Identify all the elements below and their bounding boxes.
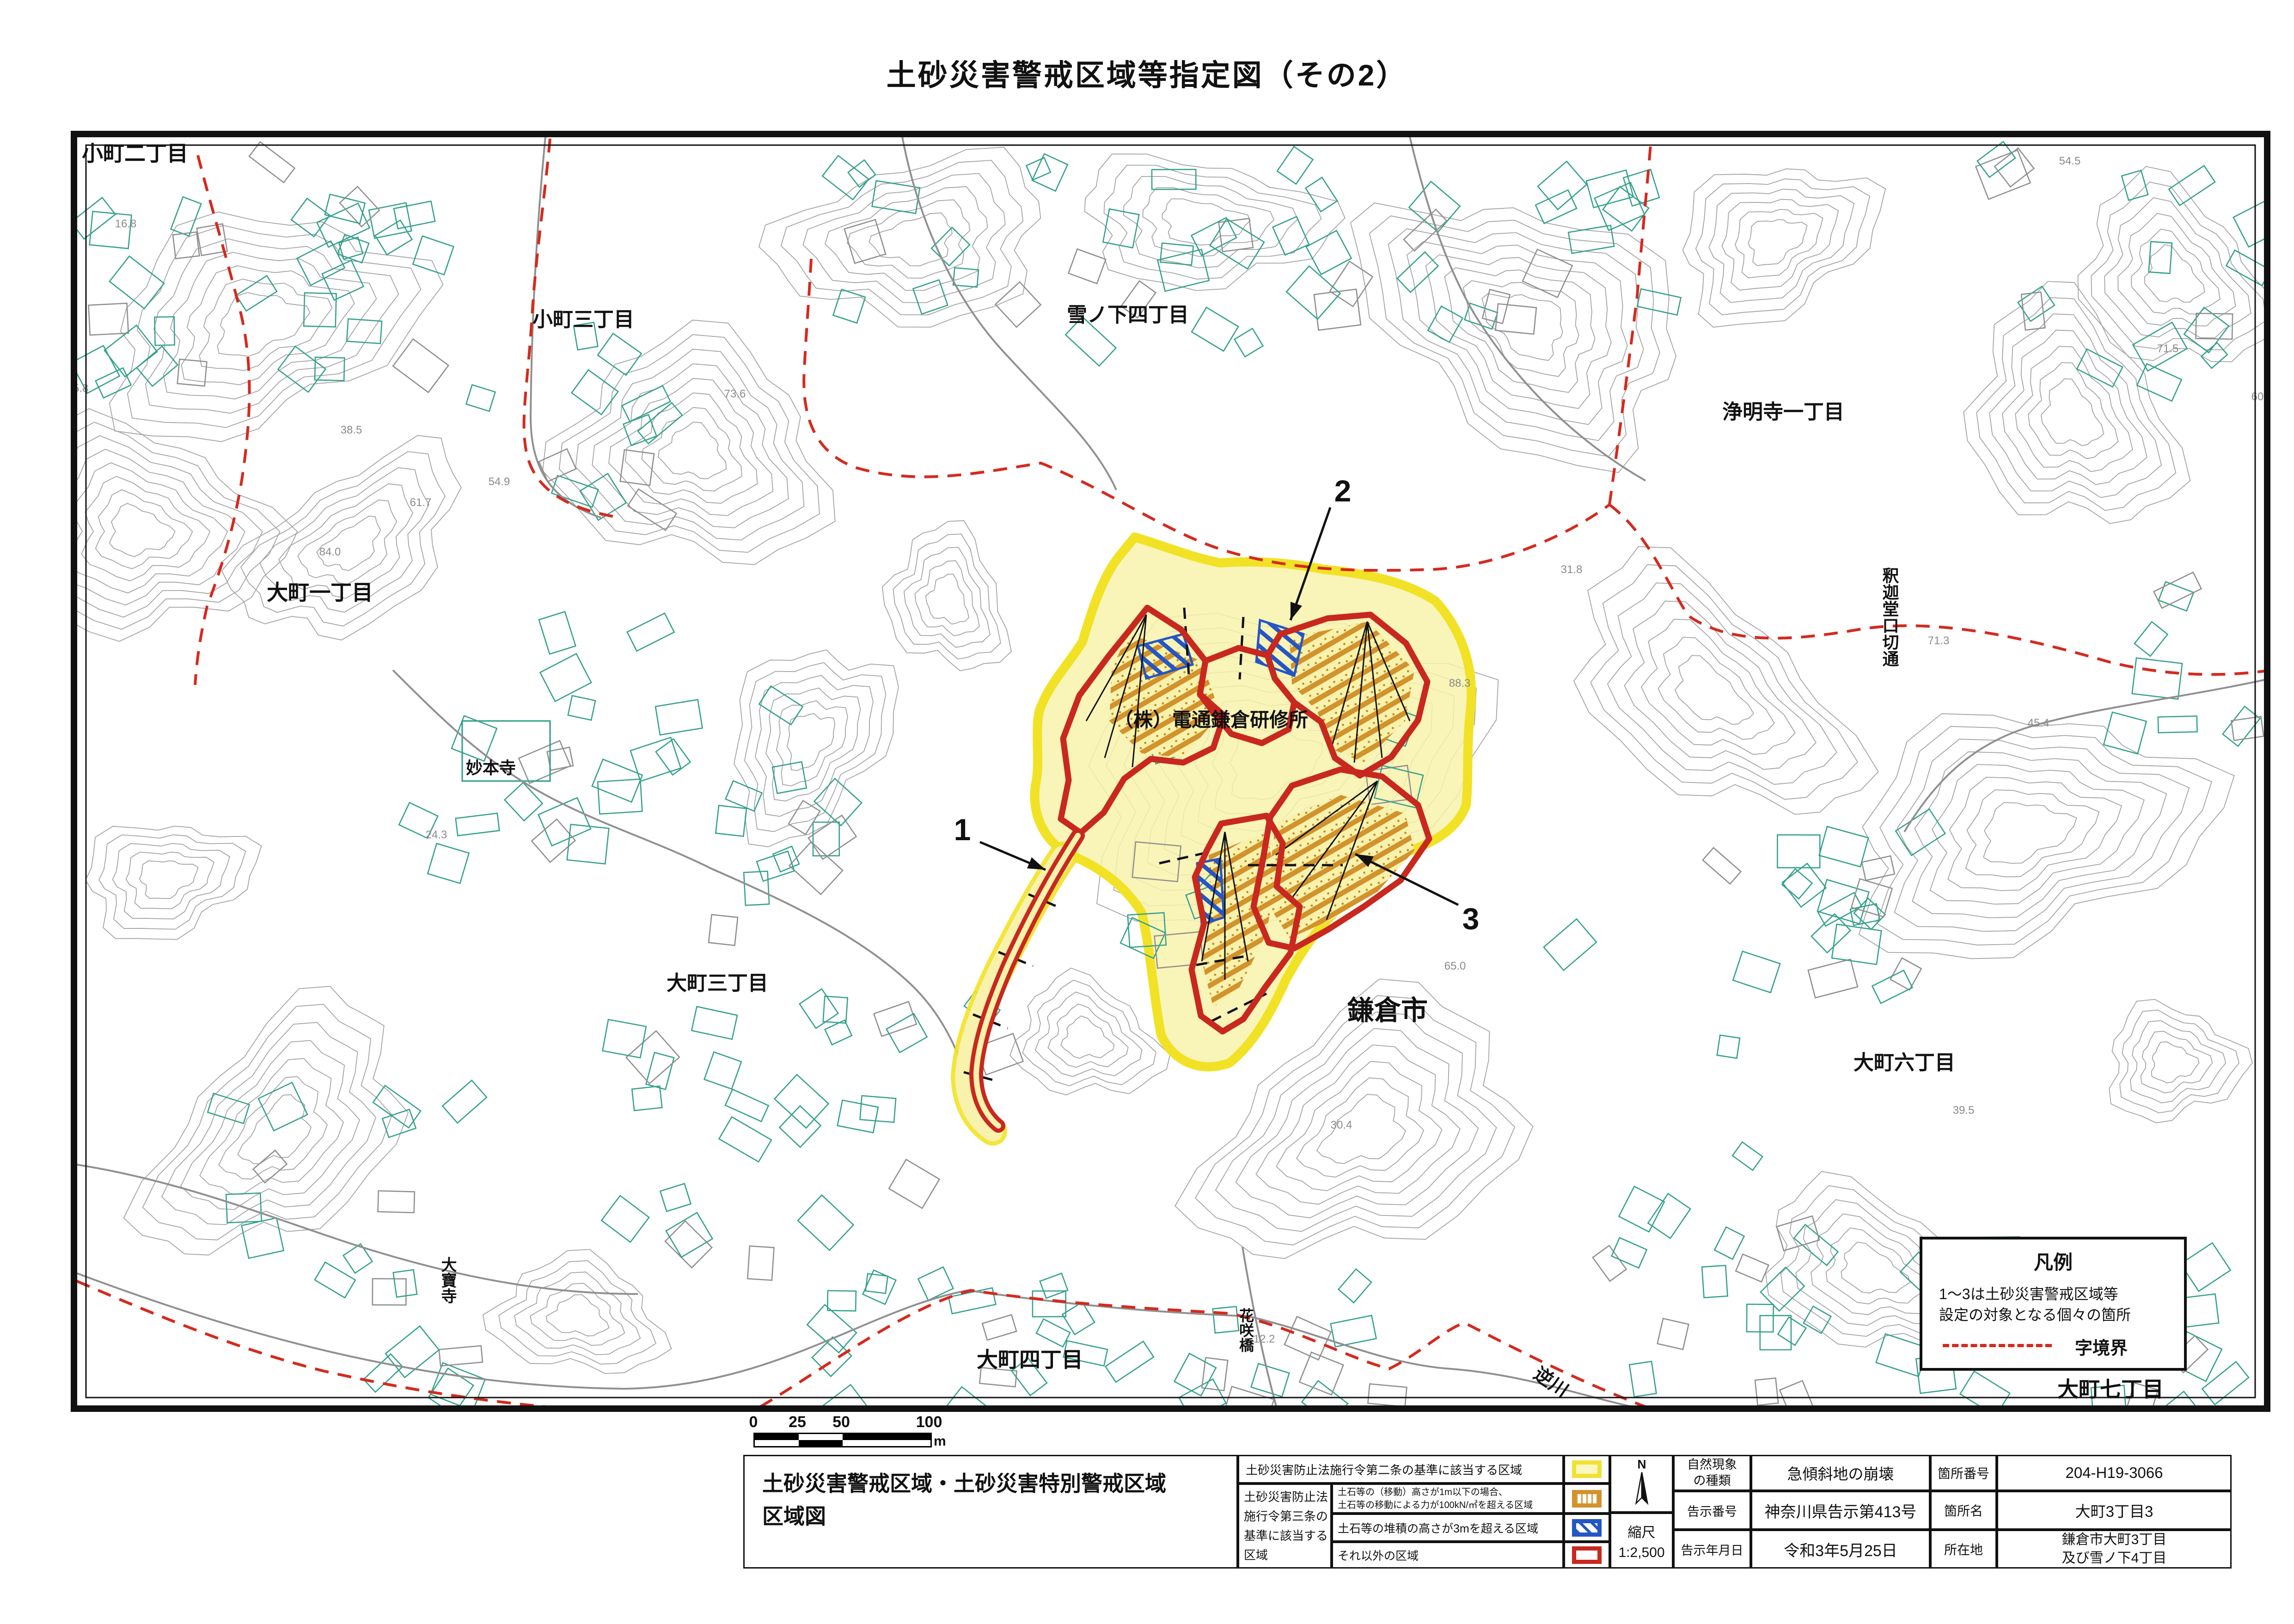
spot-elevation: 71.5 [2157,342,2179,355]
swatch-cell [1564,1542,1610,1569]
spot-elevation: 84.0 [319,546,341,558]
spot-elevation: 88.3 [1449,677,1471,690]
scale-bar-graphic [753,1433,932,1447]
scale-bar: 0 25 50 100 m [745,1413,958,1449]
map-canvas: 2 1 3 小町二丁目小町三丁目雪ノ下四丁目浄明寺一丁目大町一丁目妙本寺大町三丁… [0,0,2294,1622]
detail-key: 告示年月日 [1673,1530,1751,1569]
legend-note: 1～3は土砂災害警戒区域等 設定の対象となる個々の箇所 [1939,1284,2131,1325]
detail-value: 神奈川県告示第413号 [1751,1491,1930,1530]
page: 土砂災害警戒区域等指定図（その2） [0,0,2294,1622]
north-cell: N [1610,1455,1673,1513]
spot-elevation: 12.2 [1254,1333,1275,1345]
map-label: 花咲橋 [1237,1308,1254,1352]
spot-elevation: 24.3 [426,829,447,841]
spot-elevation: 45.4 [2028,717,2049,729]
svg-text:N: N [1637,1458,1646,1471]
map-label: 大町四丁目 [977,1348,1083,1372]
page-title: 土砂災害警戒区域等指定図（その2） [0,52,2294,94]
scale-unit: m [934,1434,946,1449]
spot-elevation: 54.9 [489,476,510,488]
spot-elevation: 61.7 [410,496,432,509]
map-label: 大町三丁目 [667,972,768,995]
spot-elevation: 38.5 [341,424,362,436]
warning-zone-swatch [1572,1460,1602,1478]
swatch-cell [1564,1484,1610,1514]
detail-value: 204-H19-3066 [1997,1455,2232,1491]
spot-elevation: 16.8 [115,218,137,230]
spot-elevation: 71.3 [1928,635,1950,647]
map-label: 大寶寺 [439,1257,457,1304]
boundary-label: 字境界 [2075,1334,2128,1359]
deposit-swatch [1572,1519,1602,1537]
spot-elevation: 65.0 [1444,960,1466,972]
detail-value: 令和3年5月25日 [1751,1530,1930,1569]
map-label: 小町三丁目 [532,308,634,331]
debris-force-swatch [1572,1490,1602,1508]
scale-value: 1:2,500 [1618,1545,1664,1561]
detail-value: 大町3丁目3 [1997,1491,2232,1530]
legend-box: 凡例 1～3は土砂災害警戒区域等 設定の対象となる個々の箇所 字境界 [1920,1237,2187,1371]
law3-criteria-1: 土石等の（移動）高さが1m以下の場合、 土石等の移動による力が100kN/㎡を超… [1332,1484,1564,1514]
spot-elevation: 31.8 [1561,563,1583,576]
detail-key: 箇所番号 [1930,1455,1997,1491]
spot-elevation: 39.5 [1953,1104,1975,1117]
zone-number-label: 3 [1462,902,1480,936]
swatch-cell [1564,1455,1610,1484]
spot-elevation: 54.5 [2059,155,2081,167]
map-label: 妙本寺 [466,758,516,777]
detail-key: 自然現象 の種類 [1673,1455,1751,1491]
panel-title: 土砂災害警戒区域・土砂災害特別警戒区域 区域図 [743,1455,1238,1569]
info-panel: 土砂災害警戒区域・土砂災害特別警戒区域 区域図 土砂災害防止法施行令第二条の基準… [743,1455,2233,1570]
spot-elevation: 73.6 [724,388,746,400]
other-zone-swatch [1572,1546,1602,1564]
law2-criteria: 土砂災害防止法施行令第二条の基準に該当する区域 [1238,1455,1564,1484]
scale-tick: 0 [749,1413,758,1431]
north-arrow-icon: N [1626,1458,1658,1510]
map-label: 雪ノ下四丁目 [1067,304,1189,326]
zone-number-label: 2 [1334,474,1352,508]
zone-number-label: 1 [954,812,971,847]
map-label: 浄明寺一丁目 [1722,401,1844,423]
map-label: （株）電通鎌倉研修所 [1114,709,1308,731]
detail-key: 告示番号 [1673,1491,1751,1530]
boundary-line-sample [1943,1344,2052,1347]
scale-caption: 縮尺 [1628,1521,1656,1541]
scale-tick: 50 [832,1413,850,1431]
detail-key: 所在地 [1930,1530,1997,1569]
swatch-cell [1564,1514,1610,1542]
map-label: 大町六丁目 [1854,1051,1955,1074]
map-label: 鎌倉市 [1347,995,1428,1026]
scale-cell: 縮尺 1:2,500 [1610,1513,1673,1569]
law3-criteria-2: 土石等の堆積の高さが3mを超える区域 [1332,1514,1564,1542]
map-label: 釈迦堂口切通 [1880,567,1899,667]
map-label: 大町一丁目 [267,580,373,604]
detail-value: 急傾斜地の崩壊 [1751,1455,1930,1491]
legend-title: 凡例 [1922,1247,2184,1275]
detail-value: 鎌倉市大町3丁目 及び雪ノ下4丁目 [1997,1530,2232,1569]
law3-criteria-3: それ以外の区域 [1332,1542,1564,1569]
detail-key: 箇所名 [1930,1491,1997,1530]
scale-tick: 100 [916,1413,942,1431]
spot-elevation: 30.4 [1331,1119,1352,1131]
scale-tick: 25 [789,1413,806,1431]
law3-group-label: 土砂災害防止法 施行令第三条の 基準に該当する 区域 [1238,1484,1332,1569]
